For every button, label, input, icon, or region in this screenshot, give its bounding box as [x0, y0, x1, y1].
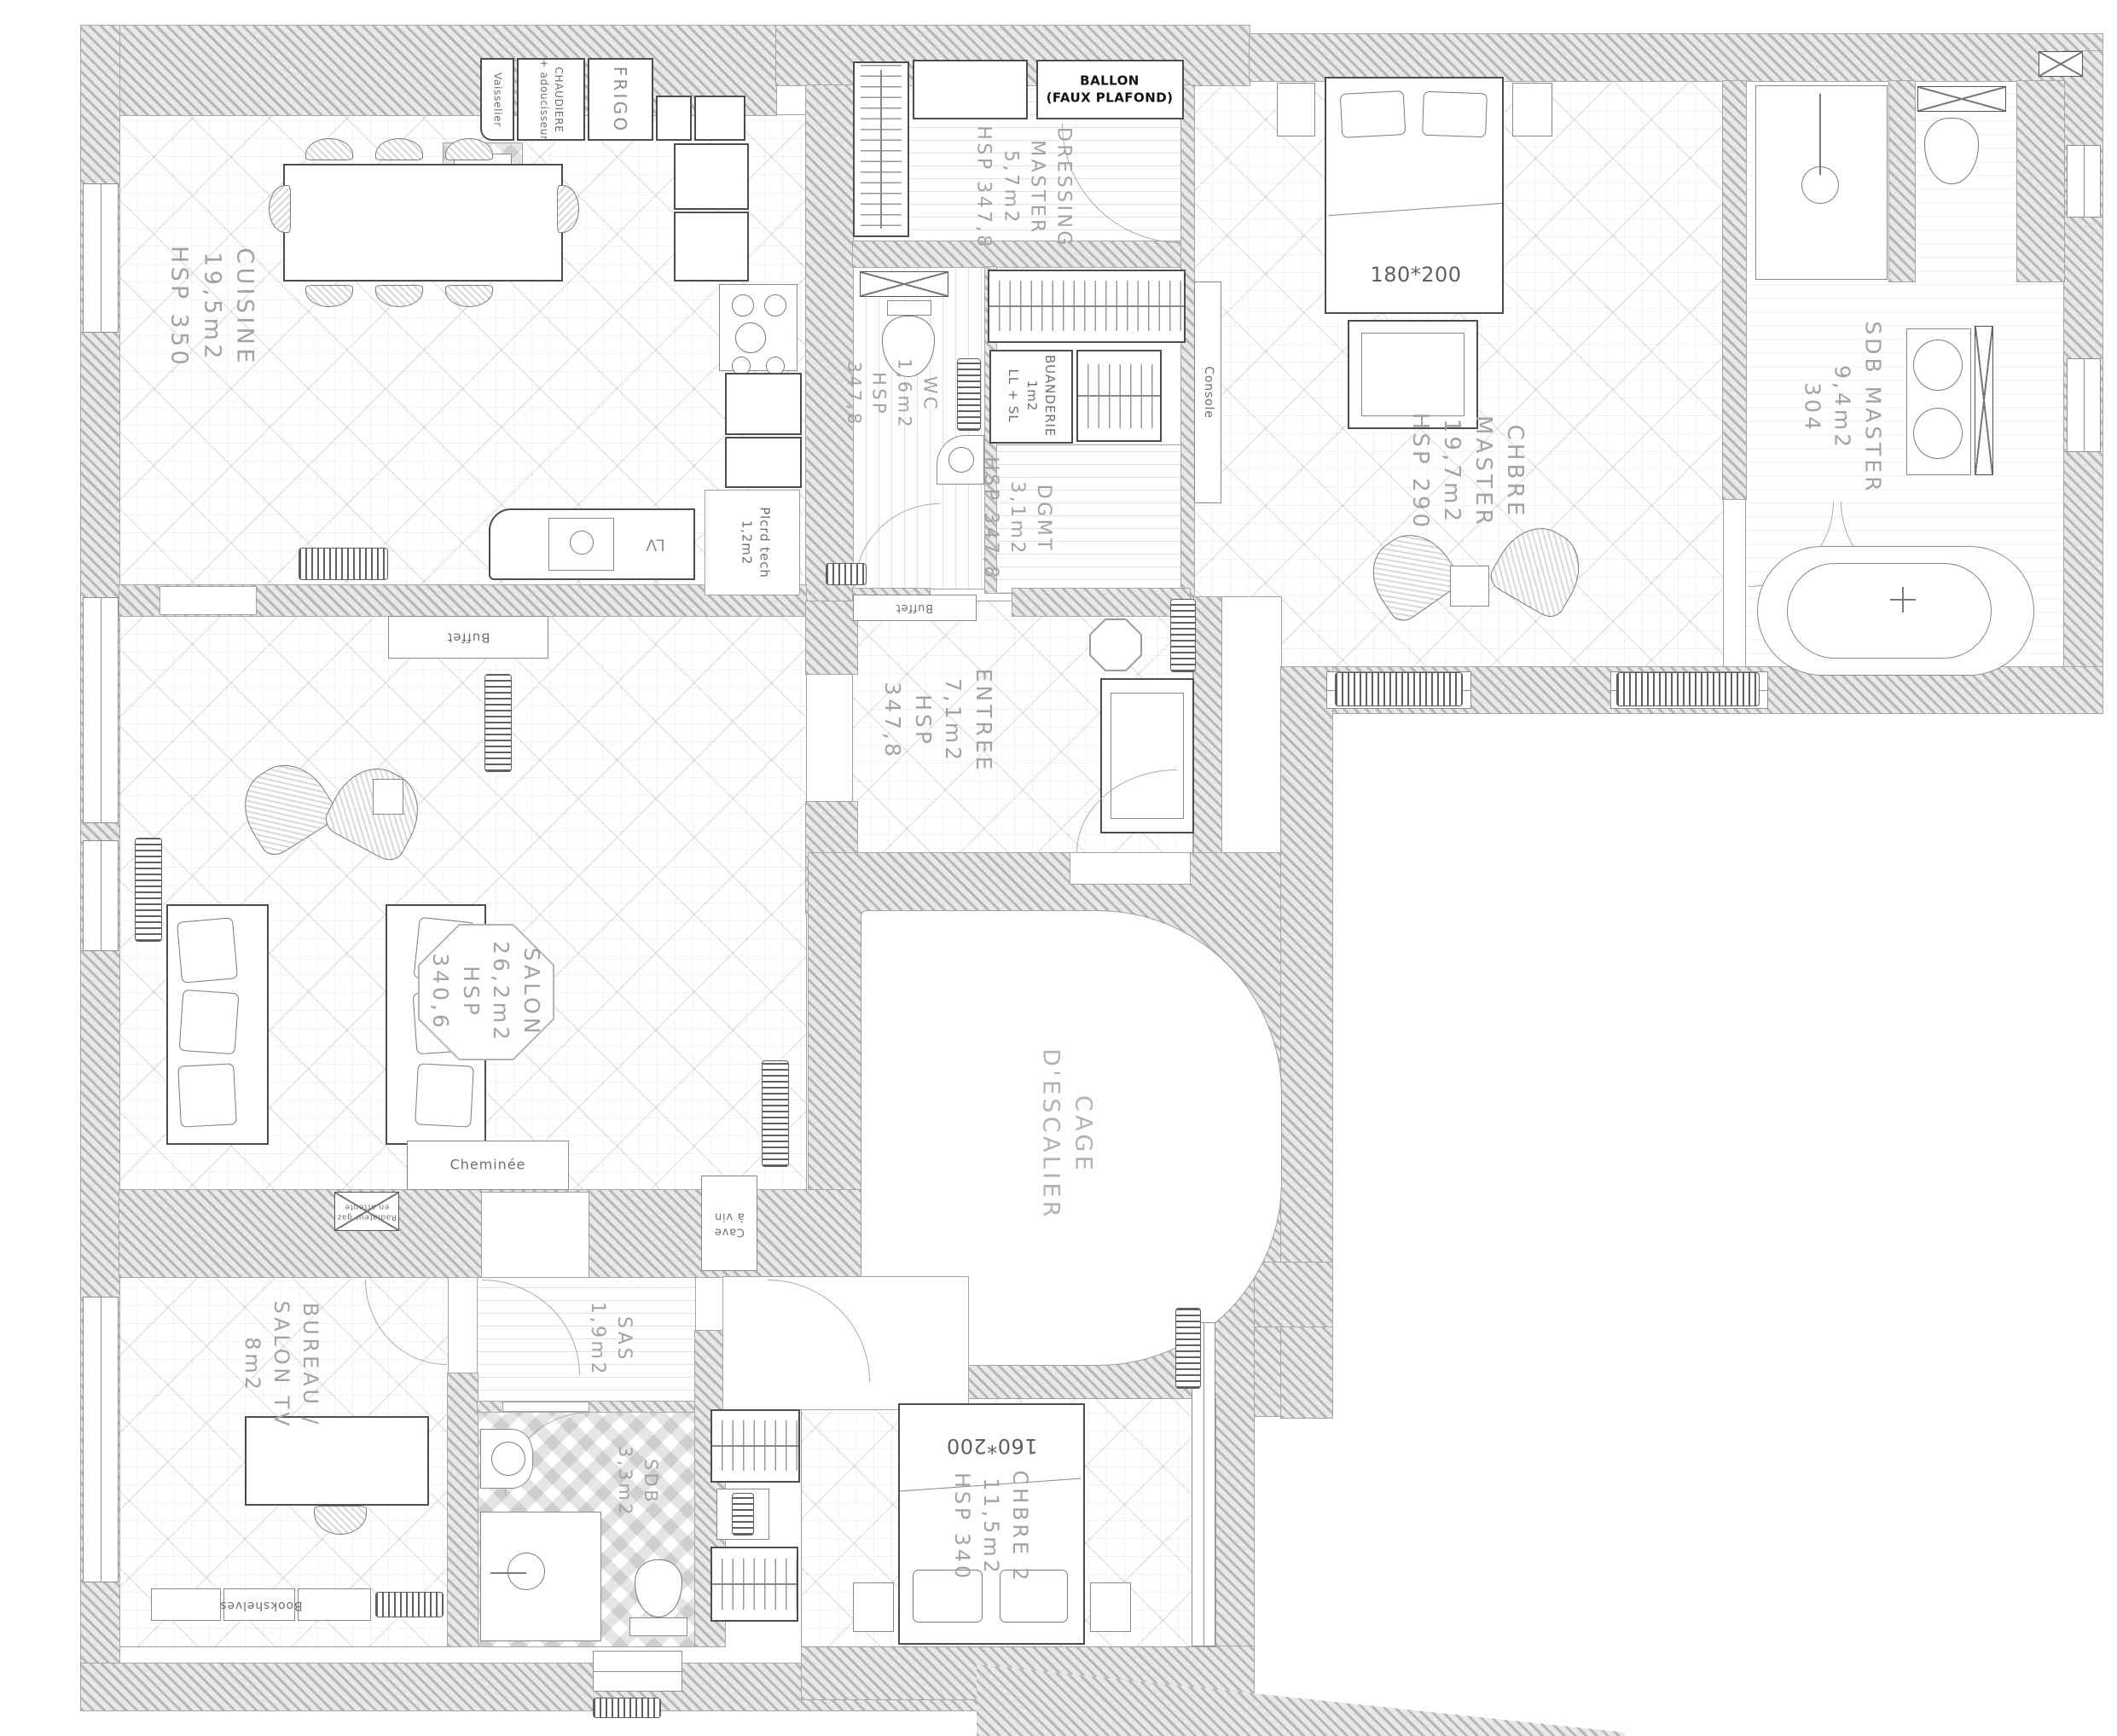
- room-label-sdb-master: SDB MASTER9,4m2304: [1797, 321, 1888, 494]
- radiator-chambre-1: [1335, 672, 1463, 706]
- room-label-buanderie: BUANDERIE1m2LL + SL: [1004, 355, 1058, 437]
- label-frigo: FRIGO: [608, 67, 632, 134]
- label-lv: LV: [645, 533, 665, 556]
- radiator-salon-right: [484, 674, 512, 772]
- room-label-entree: ENTREE7,1m2HSP347,8: [878, 669, 999, 774]
- room-label-chbre-master: CHBREMASTER19,7m2HSP 290: [1404, 413, 1530, 531]
- nightstand-chbre2-right: [1090, 1582, 1131, 1632]
- radiator-wc: [957, 358, 981, 431]
- label-rad-attente: Radiateur gazen attente: [337, 1201, 397, 1221]
- radiator-sdb: [593, 1698, 661, 1718]
- wall-sdbm-shaft: [2017, 81, 2064, 282]
- wardrobe-chbre2-1: [710, 1409, 800, 1483]
- shower-sdb-arm: [490, 1572, 526, 1574]
- desk-bureau: [245, 1416, 429, 1506]
- room-label-dressing: DRESSINGMASTER5,7m2HSP 347,8: [971, 125, 1077, 249]
- room-label-chbre2: CHBRE 211,5m2HSP 340: [948, 1471, 1035, 1584]
- opening-kitchen-salon: [160, 587, 256, 614]
- room-label-salon: SALON26,2m2HSP340,6: [426, 941, 547, 1043]
- burner-center: [735, 322, 766, 353]
- pillow: [1422, 91, 1488, 138]
- wardrobe-hall: [988, 270, 1186, 343]
- burner-1: [732, 294, 754, 316]
- sofa-pillow: [177, 917, 238, 983]
- wc-shelf: [860, 271, 948, 297]
- room-label-wc: WC1,6m2HSP347,8: [840, 358, 942, 430]
- label-bookshelves: Bookshelves: [220, 1596, 303, 1613]
- label-chaudiere: CHAUDIERE+ adoucisseur: [536, 59, 565, 141]
- burner-2: [764, 294, 786, 316]
- radiator-kitchen: [299, 548, 388, 580]
- bookshelf-3: [298, 1588, 371, 1621]
- floor-landing: [1221, 597, 1281, 857]
- radiator-chbre2-left: [732, 1493, 754, 1536]
- wall-dgmt-entree-b: [1012, 589, 1190, 616]
- oven-dial: [570, 531, 594, 554]
- sofa-pillow: [179, 990, 240, 1054]
- counter-3: [725, 373, 802, 435]
- toilet-sdb-tank: [629, 1617, 687, 1636]
- cabinet-small-1: [656, 96, 692, 141]
- radiator-chbre2-right: [1175, 1308, 1201, 1389]
- room-label-sas: SAS1,9m2: [584, 1302, 637, 1377]
- radiator-bureau: [375, 1592, 444, 1617]
- nightstand-chbre2-left: [853, 1582, 894, 1632]
- label-plcrd: Plcrd tech1,2m2: [737, 507, 774, 578]
- kitchen-table: [283, 164, 563, 282]
- stair-landing-step: [1070, 853, 1190, 884]
- sink-master-2: [1913, 408, 1963, 459]
- window-sdb-bottom: [593, 1651, 682, 1692]
- sink-wc-basin: [948, 447, 974, 473]
- bookshelf-1: [151, 1588, 221, 1621]
- nightstand-right: [1512, 83, 1552, 136]
- side-table-master: [1450, 566, 1489, 607]
- window-salon-1: [83, 597, 119, 823]
- wall-salon-entree-a: [806, 601, 857, 674]
- wardrobe-dressing: [853, 61, 909, 237]
- radiator-dgmt: [826, 563, 867, 585]
- wall-kitchen-right: [806, 85, 853, 601]
- room-label-cuisine: CUISINE19,5m2HSP 350: [163, 246, 261, 369]
- window-sdbm-2: [2067, 358, 2101, 452]
- label-cheminee: Cheminée: [450, 1156, 526, 1176]
- counter-2: [674, 212, 749, 282]
- cabinet-small-2: [694, 96, 745, 141]
- label-bed-master-size: 180*200: [1371, 260, 1462, 289]
- sdbm-niche: [1917, 86, 2006, 112]
- side-table-salon: [373, 779, 403, 815]
- nightstand-left: [1277, 83, 1315, 136]
- radiator-salon-left: [135, 838, 162, 942]
- shower-arm: [1819, 94, 1821, 175]
- counter-1: [674, 143, 749, 210]
- sink-master-1: [1913, 340, 1963, 391]
- room-label-bureau: BUREAU /SALON TV8m2: [238, 1301, 325, 1430]
- sofa-pillow: [415, 1063, 474, 1127]
- tub-drain-v: [1902, 587, 1904, 613]
- toilet-tank-wc: [887, 300, 931, 316]
- label-cave: Caveà vin: [714, 1208, 745, 1240]
- counter-4: [725, 437, 802, 488]
- floor-plan: CUISINE19,5m2HSP 350 DRESSINGMASTER5,7m2…: [0, 0, 2117, 1736]
- wall-entree-landing: [1194, 597, 1221, 857]
- window-sdbm-top: [2039, 51, 2083, 77]
- sink-sdb-basin: [491, 1442, 525, 1476]
- wall-top-right: [1250, 34, 2102, 81]
- room-label-cage: CAGED'ESCALIER: [1034, 1048, 1099, 1221]
- label-console: Console: [1199, 366, 1216, 418]
- window-salon-2: [83, 840, 119, 951]
- pillow: [1340, 90, 1406, 138]
- room-label-sdb: SDB3,3m2: [612, 1446, 663, 1518]
- wall-bureau-sas: [448, 1373, 478, 1646]
- radiator-salon-cave: [762, 1060, 789, 1167]
- bathtub-inner: [1787, 563, 1992, 659]
- shower-sdb-head: [507, 1553, 545, 1590]
- towel-radiator: [1975, 326, 1993, 475]
- wardrobe-chbre2-2: [710, 1547, 798, 1622]
- wardrobe-hall-2: [1076, 350, 1162, 442]
- label-buffet-entree: Buffet: [896, 600, 933, 615]
- label-vaisselier: Vaisselier: [490, 73, 504, 127]
- radiator-chambre-2: [1616, 672, 1760, 706]
- label-buffet-salon: Buffet: [447, 628, 490, 646]
- wall-chambre-sdbm: [1723, 81, 1746, 499]
- window-bureau: [83, 1297, 119, 1582]
- room-label-dgmt: DGMT3,1m2HSP 347,8: [977, 456, 1057, 580]
- wall-shower-wc: [1889, 81, 1915, 282]
- label-bed2-size: 160*200: [947, 1431, 1038, 1460]
- opening-sas-sdb: [503, 1402, 589, 1411]
- label-ballon: BALLON(FAUX PLAFOND): [1047, 73, 1174, 107]
- bed-bench-cushion: [1361, 333, 1464, 416]
- window-sdbm-1: [2067, 145, 2101, 218]
- sofa-pillow: [177, 1063, 237, 1127]
- radiator-entree: [1170, 599, 1196, 672]
- cabinet-dressing: [913, 60, 1028, 119]
- window-kitchen: [83, 183, 119, 333]
- opening-salon-sas: [482, 1193, 589, 1277]
- wall-chbre2-right: [1215, 1277, 1254, 1699]
